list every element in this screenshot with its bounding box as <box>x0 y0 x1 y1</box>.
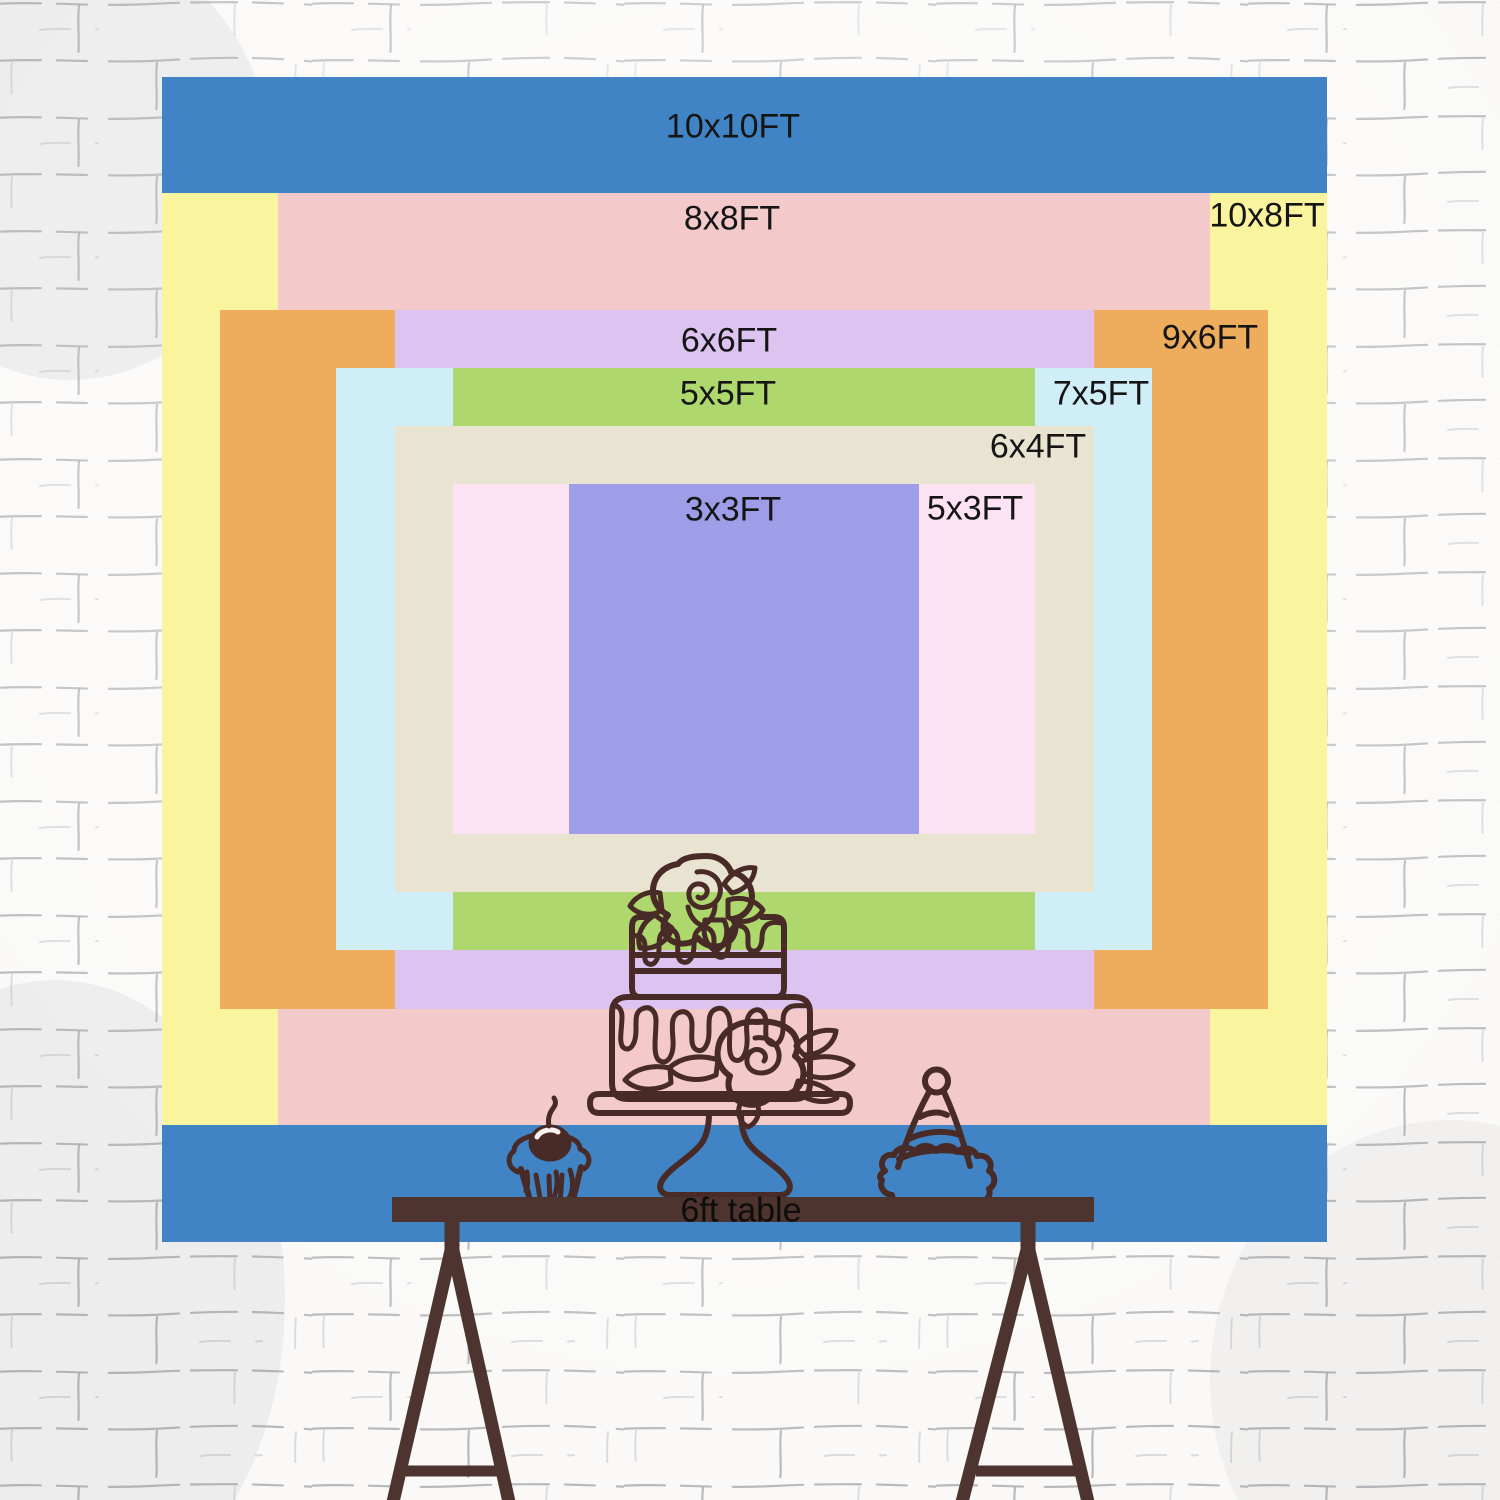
size-label-5x3: 5x3FT <box>927 490 1023 529</box>
size-label-8x8: 8x8FT <box>684 200 780 239</box>
size-label-10x10: 10x10FT <box>666 108 800 147</box>
size-label-3x3: 3x3FT <box>685 491 781 530</box>
size-label-10x8: 10x8FT <box>1209 197 1324 236</box>
size-label-5x5: 5x5FT <box>680 375 776 414</box>
size-labels: 10x10FT10x8FT8x8FT9x6FT6x6FT7x5FT5x5FT6x… <box>0 0 1500 1500</box>
size-label-9x6: 9x6FT <box>1162 319 1258 358</box>
size-label-6x4: 6x4FT <box>990 428 1086 467</box>
size-label-6x6: 6x6FT <box>681 322 777 361</box>
table-label: 6ft table <box>681 1192 802 1231</box>
backdrop-size-chart: 10x10FT10x8FT8x8FT9x6FT6x6FT7x5FT5x5FT6x… <box>0 0 1500 1500</box>
size-label-7x5: 7x5FT <box>1053 375 1149 414</box>
